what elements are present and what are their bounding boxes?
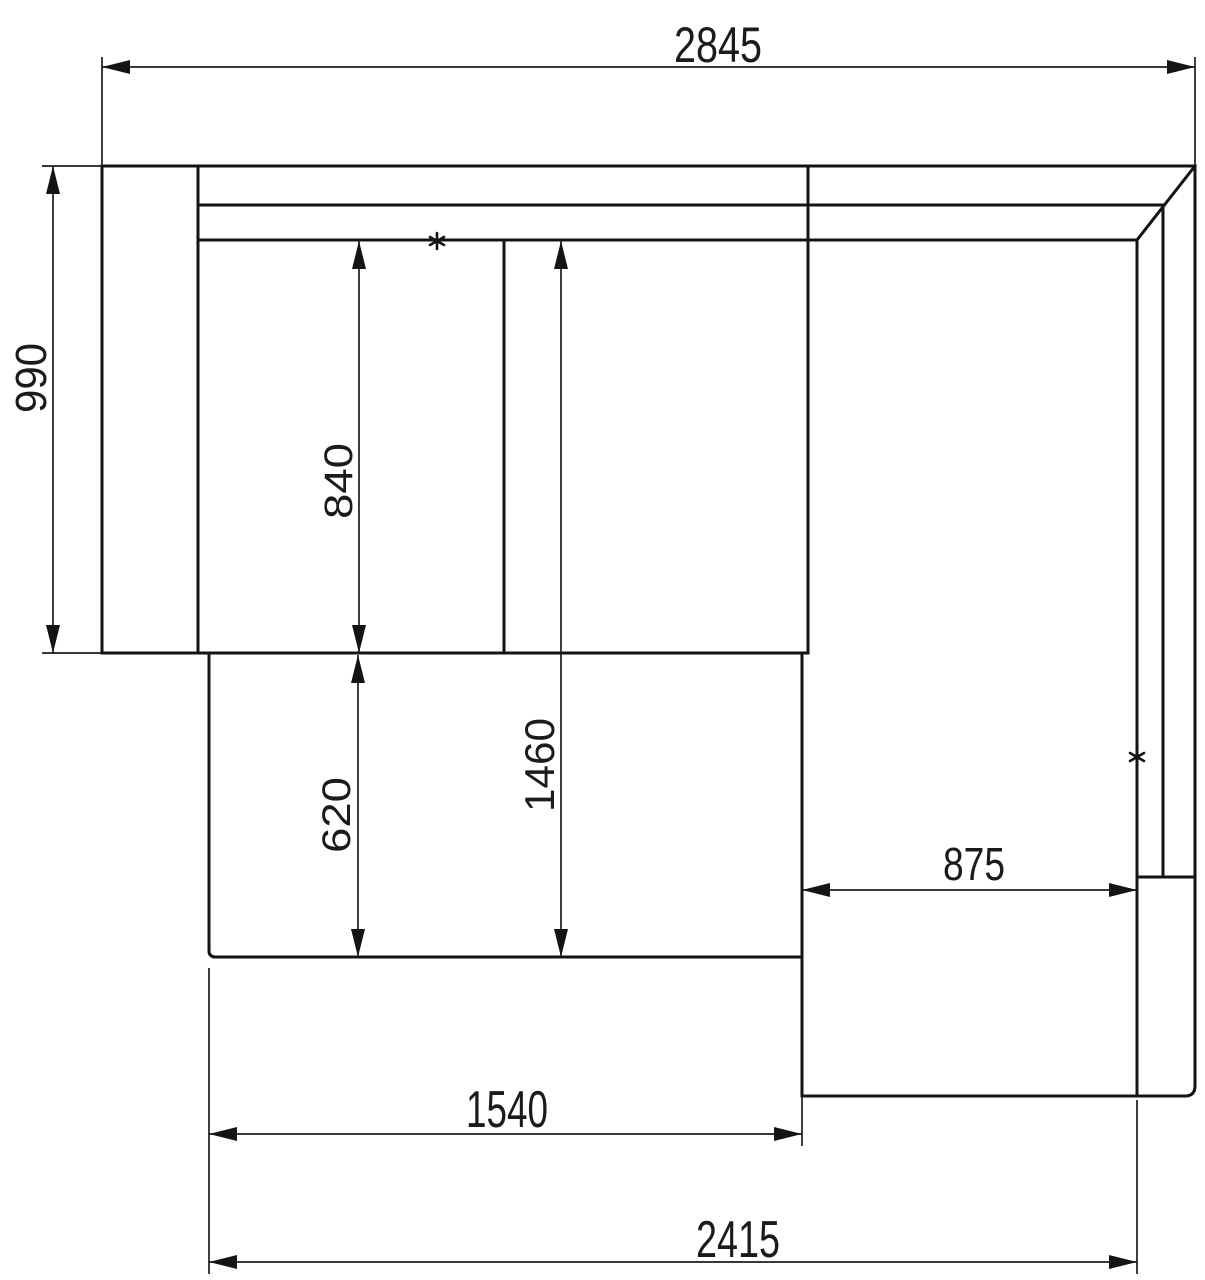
arrow-2845-right [1167, 60, 1195, 74]
corner-miter-seam [1137, 166, 1195, 240]
arrow-1540-left [209, 1127, 237, 1141]
label-overall-depth: 990 [7, 343, 56, 413]
label-chaise-width: 875 [943, 838, 1005, 890]
label-front-width: 1540 [466, 1081, 548, 1139]
arrow-840-bottom [352, 625, 366, 653]
dimension-lines [53, 67, 1195, 1262]
arrow-620-top [351, 655, 365, 683]
asterisk-marker-icon [1130, 749, 1144, 765]
sofa-outline [102, 166, 1195, 1096]
point-markers [430, 233, 1144, 765]
arrow-620-bottom [351, 929, 365, 957]
arrow-990-top [46, 166, 60, 194]
label-overall-width: 2845 [674, 17, 762, 73]
extension-left-edge [209, 655, 216, 957]
arrow-1540-right [774, 1127, 802, 1141]
arrow-875-left [802, 883, 830, 897]
arrow-2415-right [1109, 1255, 1137, 1269]
arrow-840-top [352, 241, 366, 269]
arrow-990-bottom [46, 625, 60, 653]
arrow-2415-left [209, 1255, 237, 1269]
label-lower-overall-width: 2415 [696, 1211, 780, 1269]
label-sleeping-length: 1460 [516, 718, 563, 812]
label-seat-depth: 840 [317, 443, 361, 519]
arrow-1460-top [554, 241, 568, 269]
arrow-2845-left [102, 60, 130, 74]
arrow-1460-bottom [554, 929, 568, 957]
technical-drawing-sheet: 2845 990 840 620 1460 875 1540 2415 [0, 0, 1205, 1280]
arrow-875-right [1109, 883, 1137, 897]
sofa-dimension-drawing: 2845 990 840 620 1460 875 1540 2415 [0, 0, 1205, 1280]
label-extension-depth: 620 [315, 777, 359, 853]
